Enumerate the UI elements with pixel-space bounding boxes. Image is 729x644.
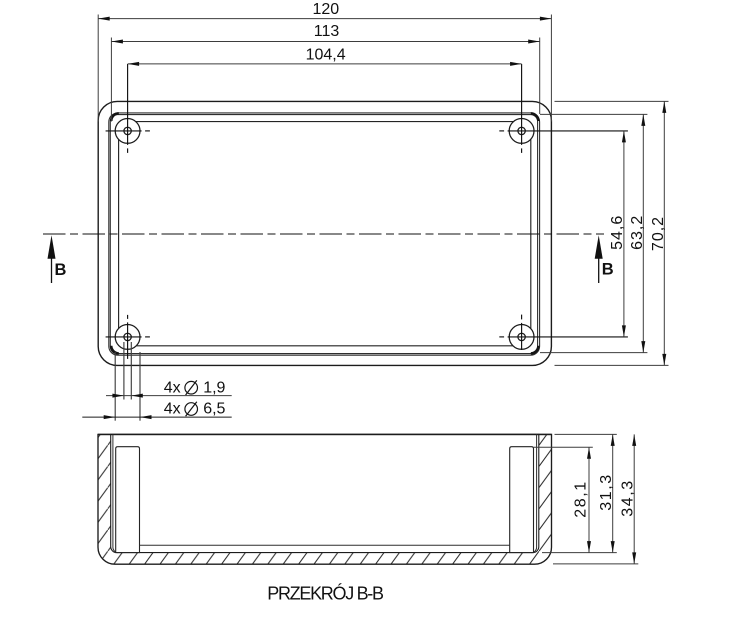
svg-text:70,2: 70,2: [650, 216, 667, 251]
svg-text:B: B: [55, 261, 67, 279]
svg-text:34,3: 34,3: [619, 479, 636, 517]
svg-text:4x: 4x: [164, 379, 181, 396]
svg-text:4x: 4x: [164, 401, 181, 418]
svg-text:6,5: 6,5: [203, 401, 225, 418]
svg-text:54,6: 54,6: [609, 215, 626, 250]
svg-text:104,4: 104,4: [306, 46, 346, 63]
svg-text:120: 120: [312, 1, 339, 18]
svg-text:1,9: 1,9: [203, 379, 225, 396]
svg-text:PRZEKRÓJ B-B: PRZEKRÓJ B-B: [267, 583, 384, 604]
svg-text:63,2: 63,2: [629, 215, 646, 250]
svg-text:31,3: 31,3: [598, 473, 615, 511]
svg-text:28,1: 28,1: [573, 480, 590, 518]
svg-text:113: 113: [314, 23, 340, 40]
svg-text:B: B: [602, 261, 614, 279]
